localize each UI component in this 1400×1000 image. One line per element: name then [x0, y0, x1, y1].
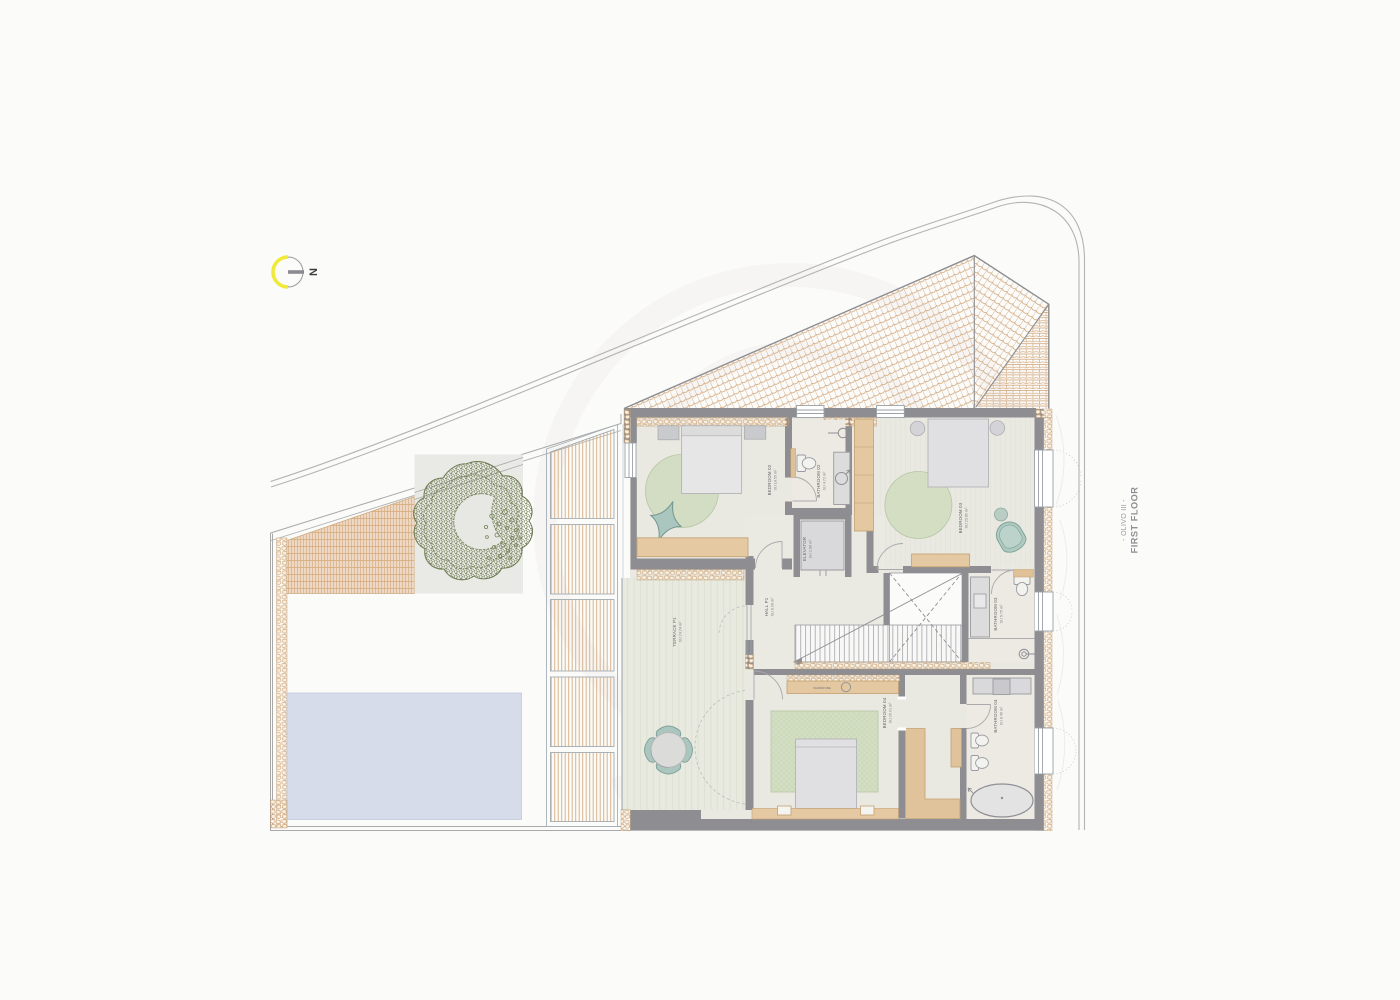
svg-text:SU 8.08 m²: SU 8.08 m² — [771, 597, 775, 616]
svg-text:ELEVATOR: ELEVATOR — [802, 537, 807, 561]
svg-text:HALL P1: HALL P1 — [764, 597, 769, 616]
svg-text:SU 4.72 m²: SU 4.72 m² — [823, 471, 827, 490]
svg-text:N: N — [308, 268, 320, 276]
svg-text:BEDROOM 04: BEDROOM 04 — [882, 697, 887, 728]
svg-text:FIRST FLOOR: FIRST FLOOR — [1130, 487, 1140, 554]
svg-text:TERRACE P1: TERRACE P1 — [672, 617, 677, 647]
svg-text:SU 23.80 m²: SU 23.80 m² — [965, 507, 969, 528]
svg-text:BEDROOM 03: BEDROOM 03 — [958, 502, 963, 533]
svg-text:SU 26.01 m²: SU 26.01 m² — [889, 702, 893, 723]
svg-text:BATHROOM 04: BATHROOM 04 — [993, 699, 998, 733]
svg-text:SU 24.24 m²: SU 24.24 m² — [679, 621, 683, 642]
svg-text:BATHROOM 03: BATHROOM 03 — [993, 597, 998, 631]
svg-text:WARDROBE: WARDROBE — [813, 686, 831, 690]
svg-text:- OLIVO III -: - OLIVO III - — [1121, 499, 1128, 541]
svg-text:BEDROOM 02: BEDROOM 02 — [767, 464, 772, 495]
svg-text:BATHROOM 02: BATHROOM 02 — [816, 464, 821, 498]
svg-text:SU 8.46 m²: SU 8.46 m² — [1000, 706, 1004, 725]
svg-text:SU 18.55 m²: SU 18.55 m² — [774, 469, 778, 490]
svg-text:SU 5.75 m²: SU 5.75 m² — [1000, 604, 1004, 623]
svg-text:SU 2.88 m²: SU 2.88 m² — [809, 539, 813, 558]
